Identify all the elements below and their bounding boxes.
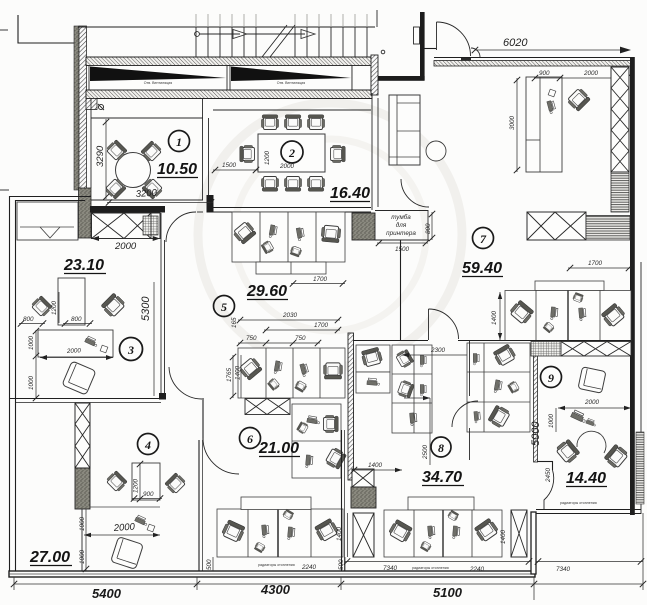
- svg-text:Отв. Вентиляция: Отв. Вентиляция: [144, 81, 172, 85]
- svg-text:тумба: тумба: [391, 213, 411, 221]
- svg-text:750: 750: [295, 335, 306, 342]
- svg-text:6020: 6020: [503, 37, 528, 49]
- svg-text:2000: 2000: [583, 70, 599, 77]
- svg-text:500: 500: [206, 559, 213, 570]
- svg-text:7340: 7340: [383, 565, 398, 572]
- svg-text:2000: 2000: [584, 399, 600, 406]
- svg-text:165: 165: [231, 317, 238, 328]
- svg-text:7340: 7340: [556, 566, 571, 573]
- svg-text:5000: 5000: [530, 421, 542, 446]
- svg-text:1200: 1200: [51, 300, 58, 315]
- svg-text:5400: 5400: [92, 586, 122, 601]
- svg-text:800: 800: [425, 223, 432, 234]
- svg-text:10.50: 10.50: [157, 161, 197, 178]
- svg-text:2500: 2500: [422, 444, 429, 460]
- svg-text:2000: 2000: [112, 521, 136, 534]
- svg-text:7: 7: [480, 232, 487, 246]
- svg-text:3000: 3000: [509, 115, 516, 130]
- svg-text:3200: 3200: [135, 187, 158, 199]
- svg-text:2000: 2000: [114, 241, 137, 252]
- svg-text:2000: 2000: [279, 163, 295, 170]
- svg-text:2300: 2300: [430, 347, 446, 354]
- svg-text:27.00: 27.00: [29, 549, 70, 566]
- svg-text:Отв. Вентиляция: Отв. Вентиляция: [277, 81, 305, 85]
- svg-text:для: для: [396, 221, 407, 229]
- svg-text:1500: 1500: [395, 246, 410, 253]
- svg-text:радиаторы отопления: радиаторы отопления: [412, 566, 449, 570]
- svg-text:1700: 1700: [313, 276, 328, 283]
- svg-text:1: 1: [176, 135, 182, 149]
- svg-text:5: 5: [221, 300, 227, 314]
- svg-text:1400: 1400: [500, 529, 507, 544]
- svg-text:2240: 2240: [469, 566, 485, 573]
- svg-text:1000: 1000: [28, 375, 35, 390]
- svg-text:14.40: 14.40: [566, 470, 606, 487]
- svg-text:6: 6: [247, 432, 253, 446]
- svg-text:1500: 1500: [222, 162, 237, 169]
- svg-text:1765: 1765: [226, 367, 233, 382]
- svg-text:9: 9: [548, 371, 554, 385]
- svg-text:21.00: 21.00: [258, 440, 299, 457]
- svg-text:900: 900: [539, 70, 550, 77]
- svg-text:2: 2: [288, 146, 295, 160]
- svg-text:3: 3: [127, 343, 134, 357]
- svg-text:1200: 1200: [133, 478, 140, 493]
- svg-text:29.60: 29.60: [246, 283, 287, 300]
- svg-text:1400: 1400: [491, 310, 498, 325]
- svg-text:2030: 2030: [282, 312, 298, 319]
- svg-text:радиаторы отопления: радиаторы отопления: [258, 563, 295, 567]
- svg-text:1400: 1400: [235, 365, 242, 380]
- svg-text:750: 750: [246, 335, 257, 342]
- svg-text:1000: 1000: [548, 413, 555, 428]
- svg-text:4: 4: [144, 438, 151, 452]
- svg-text:принтера: принтера: [386, 230, 416, 237]
- svg-text:1200: 1200: [264, 150, 271, 165]
- svg-text:2000: 2000: [66, 347, 82, 355]
- svg-text:1000: 1000: [79, 516, 86, 531]
- svg-text:1400: 1400: [368, 462, 383, 469]
- svg-text:900: 900: [143, 491, 154, 498]
- svg-text:2450: 2450: [545, 467, 552, 483]
- svg-text:5100: 5100: [433, 585, 463, 600]
- svg-text:800: 800: [23, 316, 34, 323]
- svg-text:1000: 1000: [28, 335, 35, 350]
- svg-text:16.40: 16.40: [330, 185, 370, 202]
- svg-text:2240: 2240: [301, 564, 317, 571]
- svg-text:8: 8: [438, 441, 444, 455]
- svg-text:5300: 5300: [140, 296, 152, 321]
- svg-text:1000: 1000: [79, 549, 86, 564]
- svg-text:4300: 4300: [260, 582, 291, 597]
- svg-text:1400: 1400: [336, 526, 343, 541]
- svg-text:23.10: 23.10: [63, 257, 104, 274]
- svg-text:1700: 1700: [588, 260, 603, 267]
- svg-text:34.70: 34.70: [422, 469, 462, 486]
- svg-text:радиаторы отопления: радиаторы отопления: [560, 501, 597, 505]
- svg-text:1700: 1700: [314, 322, 329, 329]
- svg-text:800: 800: [71, 316, 82, 323]
- svg-text:3290: 3290: [95, 145, 106, 167]
- svg-text:59.40: 59.40: [462, 260, 502, 277]
